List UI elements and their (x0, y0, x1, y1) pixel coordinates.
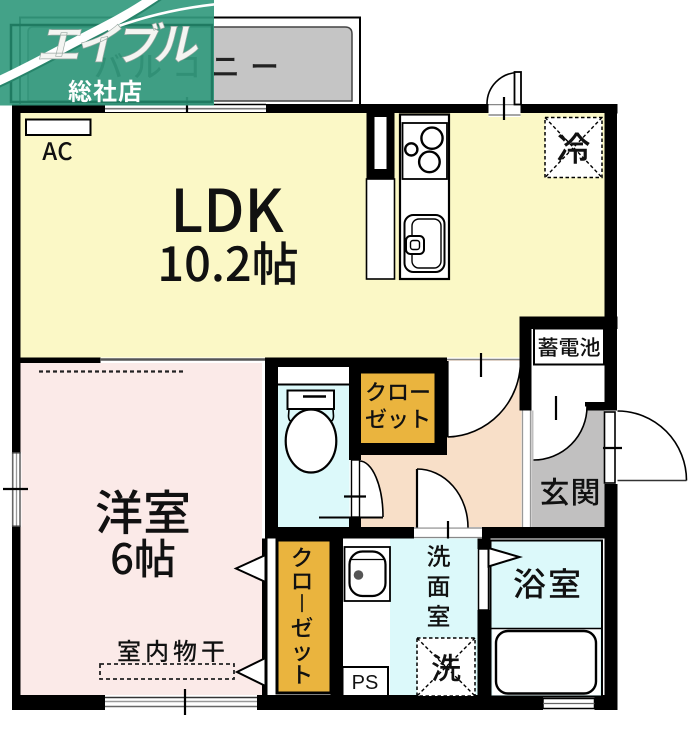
svg-text:PS: PS (352, 672, 379, 694)
